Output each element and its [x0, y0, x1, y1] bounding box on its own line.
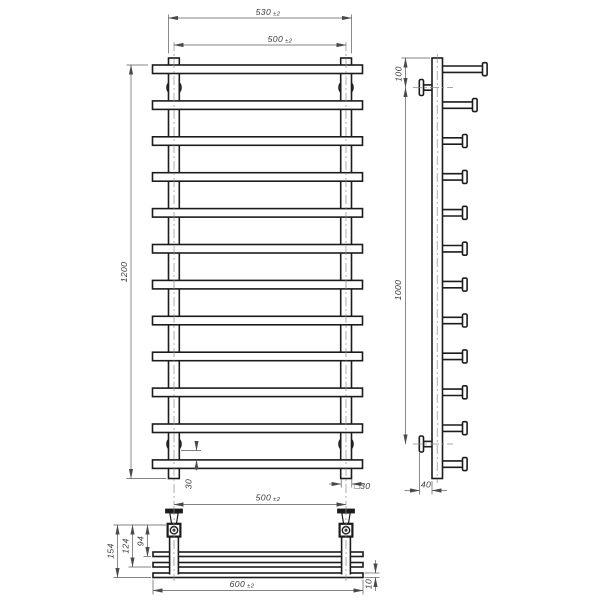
dim-mount-span: 1000	[393, 88, 406, 445]
drawing-page: 530±2 500±2 1200 30 500±2	[0, 0, 600, 600]
towel-bar	[153, 460, 363, 469]
side-mount-brackets	[419, 80, 432, 453]
peg-end-cap	[463, 170, 468, 183]
bottom-centerlines	[174, 506, 346, 581]
dim-label-square30: □30	[355, 481, 371, 491]
dim-label-530: 530±2	[256, 7, 281, 18]
peg-end-cap	[463, 422, 468, 435]
dim-label-10: 10	[364, 579, 374, 589]
bar-end-peg	[443, 63, 488, 76]
bar-row-middle	[153, 563, 363, 568]
bar-end-peg	[443, 314, 468, 327]
peg-end-cap	[463, 135, 468, 148]
dim-overall-width: 600±2	[153, 579, 363, 595]
peg-end-cap	[463, 350, 468, 363]
dim-width-outer: 530±2	[169, 7, 352, 54]
dim-label-500-bottom: 500±2	[256, 493, 281, 504]
peg-end-cap	[463, 206, 468, 219]
dim-label-40: 40	[421, 480, 431, 490]
towel-bar	[153, 101, 363, 110]
post-section-callout: □30	[329, 479, 370, 491]
front-bars	[153, 65, 363, 468]
bar-end-peg	[443, 99, 478, 112]
bar-end-peg	[443, 206, 468, 219]
bar-row-inner	[153, 552, 363, 557]
bar-end-peg	[443, 242, 468, 255]
dim-bottom-centers: 500±2	[174, 493, 346, 505]
bar-end-peg	[443, 278, 468, 291]
dim-label-600: 600±2	[230, 579, 255, 590]
dim-width-centers: 500±2	[174, 34, 346, 45]
bar-end-peg	[443, 135, 468, 148]
peg-end-cap	[483, 63, 488, 76]
dim-height: 1200	[119, 65, 166, 479]
towel-bar	[153, 137, 363, 146]
dim-label-124: 124	[121, 538, 131, 554]
towel-bar	[153, 245, 363, 254]
front-posts	[169, 58, 352, 479]
side-pegs	[443, 63, 488, 471]
towel-bar	[153, 316, 363, 325]
bar-end-peg	[443, 170, 468, 183]
bottom-bars	[153, 552, 363, 578]
towel-bar	[153, 424, 363, 433]
dim-label-154: 154	[106, 543, 116, 559]
dim-bar-thickness: 10	[364, 560, 380, 591]
peg-end-cap	[463, 314, 468, 327]
bar-end-peg	[443, 350, 468, 363]
bar-end-peg	[443, 386, 468, 399]
side-view: 100 1000 40	[393, 54, 487, 495]
peg-end-cap	[463, 458, 468, 471]
front-centerlines	[174, 42, 346, 505]
towel-bar	[153, 388, 363, 397]
peg-end-cap	[463, 242, 468, 255]
dim-label-500-top: 500±2	[268, 34, 293, 45]
dim-label-1000: 1000	[393, 280, 403, 301]
peg-end-cap	[473, 99, 478, 112]
towel-bar	[153, 280, 363, 289]
dim-top-to-mount: 100	[394, 58, 431, 88]
towel-bar	[153, 173, 363, 182]
towel-bar	[153, 65, 363, 74]
towel-bar	[153, 352, 363, 361]
dim-label-100: 100	[394, 66, 404, 82]
front-view: 530±2 500±2 1200 30 500±2	[119, 7, 370, 505]
bar-row-outer	[153, 573, 363, 578]
towel-bar	[153, 209, 363, 218]
dim-label-1200: 1200	[119, 262, 129, 283]
bar-end-peg	[443, 422, 468, 435]
technical-drawing: 530±2 500±2 1200 30 500±2	[0, 0, 600, 600]
bottom-view: 94 124 154 600±2 10	[106, 506, 380, 595]
peg-end-cap	[463, 278, 468, 291]
bar-end-peg	[443, 458, 468, 471]
dim-label-30: 30	[184, 479, 194, 489]
peg-end-cap	[463, 386, 468, 399]
dim-label-94: 94	[136, 536, 146, 546]
